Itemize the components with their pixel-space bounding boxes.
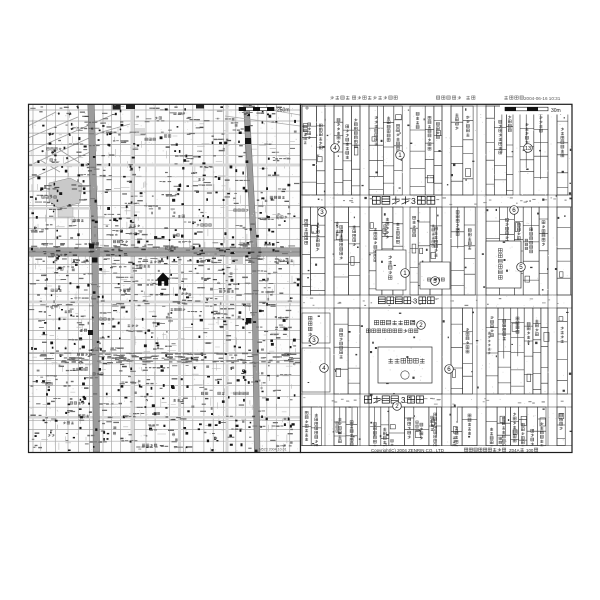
svg-text:4: 4 [322, 365, 326, 372]
svg-text:5: 5 [519, 264, 523, 271]
svg-text:3: 3 [411, 196, 416, 206]
svg-text:3: 3 [312, 337, 316, 344]
svg-text:4: 4 [333, 145, 337, 152]
svg-text:N523 2004.10.01: N523 2004.10.01 [259, 448, 287, 452]
svg-text:250m: 250m [277, 108, 290, 114]
svg-text:3: 3 [401, 396, 406, 405]
svg-text:6: 6 [512, 207, 516, 214]
svg-text:3: 3 [413, 297, 417, 306]
svg-text:2: 2 [395, 403, 399, 410]
svg-text:13: 13 [525, 146, 531, 152]
svg-text:1: 1 [403, 270, 407, 277]
svg-text:6: 6 [447, 366, 451, 373]
svg-text:3: 3 [320, 209, 324, 216]
svg-text:2004-06-16 10:31: 2004-06-16 10:31 [524, 96, 561, 101]
svg-text:2: 2 [419, 322, 423, 329]
svg-text:30m: 30m [551, 108, 561, 114]
svg-text:1: 1 [398, 152, 402, 159]
